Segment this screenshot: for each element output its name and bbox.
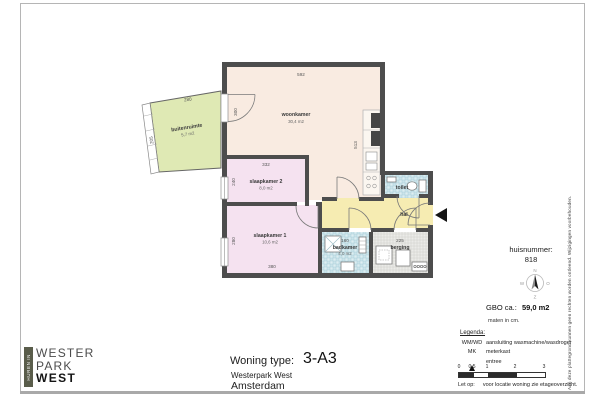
- berging-kast: [396, 250, 410, 266]
- woning-type-value: 3-A3: [303, 350, 337, 368]
- city-name: Amsterdam: [231, 380, 285, 392]
- note-label: Let op:: [458, 382, 475, 388]
- label-woonkamer: woonkamer: [281, 112, 311, 118]
- label-toilet: toilet: [396, 185, 409, 191]
- legend-desc-mk: meterkast: [486, 349, 576, 355]
- legend-key-wmwd: WM/WD: [458, 340, 486, 346]
- logo-line-3: WEST: [36, 372, 95, 385]
- brand-logo: HUREN IN WESTER PARK WEST: [24, 347, 95, 387]
- area-badkamer: 4,0 m2: [338, 251, 352, 256]
- legend-row-mk: MK meterkast: [458, 348, 576, 358]
- legend-title: Legenda:: [460, 330, 485, 336]
- note-row: Let op:voor locatie woning zie etageover…: [458, 382, 577, 388]
- legend-row-wmwd: WM/WD aansluiting wasmachine/wasdroger: [458, 338, 576, 348]
- windows: [221, 94, 228, 266]
- logo-text: WESTER PARK WEST: [36, 347, 95, 387]
- woning-type-label: Woning type:: [230, 355, 294, 367]
- kitchen-appliance: [371, 131, 380, 146]
- dim-woonkamer-breedte: 592: [297, 72, 305, 77]
- scale-tick-3: 3: [543, 364, 546, 370]
- scale-tick-1: 1: [486, 364, 489, 370]
- label-slaapkamer-2: slaapkamer 2: [250, 179, 283, 185]
- compass-n: N: [533, 268, 536, 273]
- entree-arrow-icon: [435, 208, 447, 222]
- dim-slaapkamer1-breedte: 380: [268, 264, 276, 269]
- dim-badkamer-breedte: 160: [341, 238, 349, 243]
- kitchen-sink: [366, 152, 377, 161]
- scale-bar-segments: [458, 372, 546, 378]
- project-name: Westerpark West: [231, 371, 292, 380]
- area-woonkamer: 30,4 m2: [288, 119, 304, 124]
- huisnummer-label: huisnummer:: [495, 245, 567, 255]
- units-note: maten in cm.: [488, 318, 519, 324]
- label-hal: hal: [400, 212, 408, 218]
- gbo-row: GBO ca.: 59,0 m2: [486, 303, 549, 312]
- compass-o: O: [546, 281, 550, 286]
- legend: WM/WD aansluiting wasmachine/wasdroger M…: [458, 338, 576, 367]
- logo-bar: HUREN IN: [24, 347, 33, 387]
- scale-tick-2: 2: [514, 364, 517, 370]
- kitchen-counter: [363, 110, 380, 195]
- washbasin: [341, 262, 354, 271]
- dim-slaapkamer1-diepte: 280: [231, 237, 236, 245]
- gbo-value: 59,0 m2: [522, 303, 550, 312]
- scale-tick-0: 0: [458, 364, 461, 370]
- gbo-label: GBO ca.:: [486, 303, 517, 312]
- kitchen-appliance: [371, 113, 380, 128]
- area-slaapkamer-1: 10,6 m2: [262, 240, 278, 245]
- dim-berging-breedte: 225: [396, 238, 404, 243]
- compass-z: Z: [534, 295, 537, 300]
- label-slaapkamer-1: slaapkamer 1: [254, 233, 287, 239]
- label-berging: berging: [390, 245, 409, 251]
- toilet-sink: [387, 177, 396, 182]
- area-slaapkamer-2: 8,0 m2: [259, 186, 273, 191]
- logo-line-1: WESTER: [36, 347, 95, 360]
- legend-key-mk: MK: [458, 349, 486, 355]
- note-text: voor locatie woning zie etageoverzicht.: [483, 382, 577, 388]
- scale-tick-05: 0,5: [469, 364, 476, 370]
- dim-slaapkamer2-diepte: 240: [231, 178, 236, 186]
- huisnummer-block: huisnummer: 818: [495, 245, 567, 265]
- compass-w: W: [520, 281, 525, 286]
- compass-icon: N O Z W: [517, 264, 553, 300]
- logo-tagline: HUREN IN: [26, 354, 31, 381]
- vertical-disclaimer: Aan deze plattegrond kunnen geen rechten…: [567, 175, 576, 390]
- wc-tank: [419, 180, 426, 192]
- balcony-door-opening: [221, 94, 228, 122]
- dim-woonkamer-diepte: 513: [353, 141, 358, 149]
- wc-bowl: [407, 182, 417, 190]
- scale-bar: 0 0,5 1 2 3: [457, 364, 549, 380]
- dim-slaapkamer2-breedte: 332: [262, 162, 270, 167]
- legend-desc-wmwd: aansluiting wasmachine/wasdroger: [486, 340, 576, 346]
- dim-balkondeur: 300: [233, 108, 238, 116]
